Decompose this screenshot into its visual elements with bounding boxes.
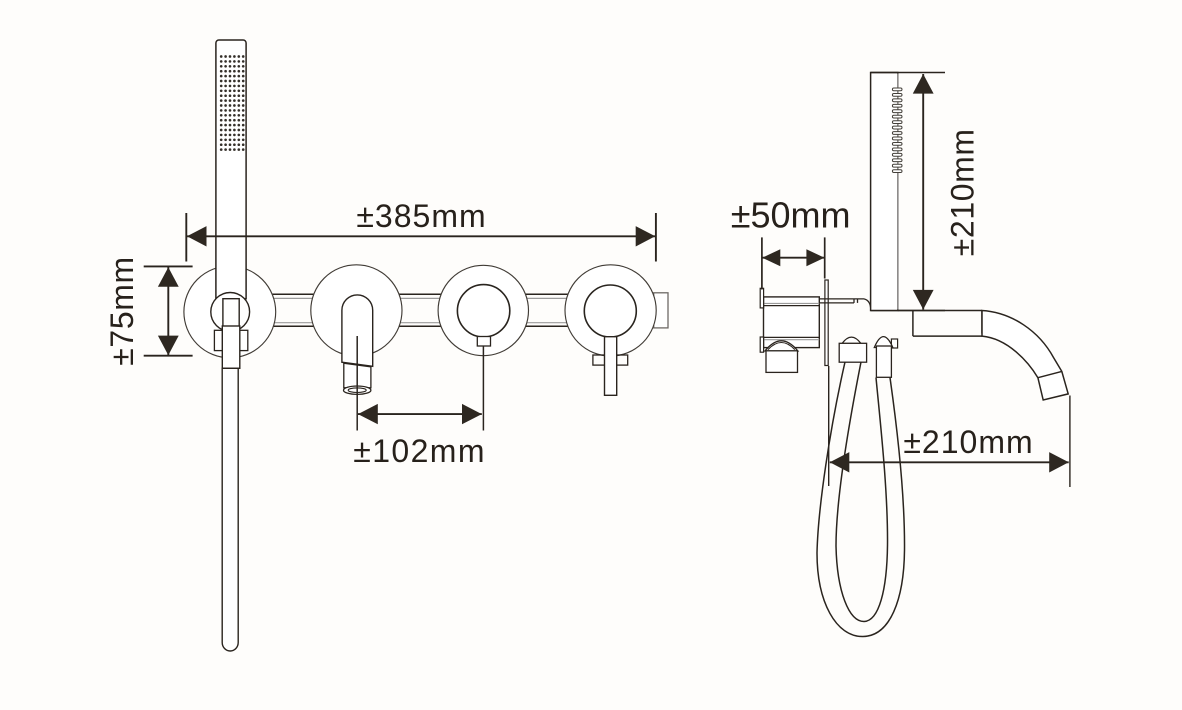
svg-text:±75mm: ±75mm xyxy=(104,256,140,365)
svg-text:±102mm: ±102mm xyxy=(353,433,486,469)
svg-text:±210mm: ±210mm xyxy=(945,128,981,256)
svg-text:±210mm: ±210mm xyxy=(903,424,1033,460)
svg-text:±385mm: ±385mm xyxy=(356,198,486,234)
svg-text:±50mm: ±50mm xyxy=(731,195,851,236)
